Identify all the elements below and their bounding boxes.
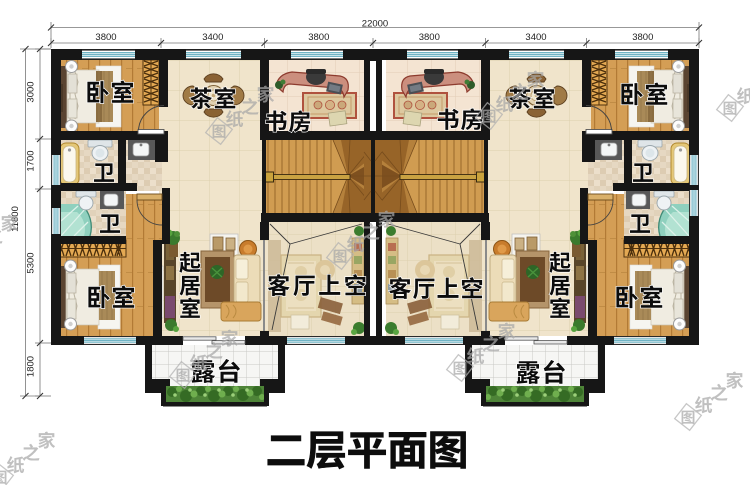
svg-text:3800: 3800 <box>632 32 653 43</box>
svg-text:1700: 1700 <box>26 150 37 171</box>
svg-text:5300: 5300 <box>26 252 37 273</box>
svg-text:22000: 22000 <box>362 19 388 30</box>
svg-text:3400: 3400 <box>202 32 223 43</box>
svg-text:3000: 3000 <box>26 81 37 102</box>
svg-text:3800: 3800 <box>308 32 329 43</box>
svg-text:3800: 3800 <box>419 32 440 43</box>
svg-text:1800: 1800 <box>26 356 37 377</box>
svg-text:3800: 3800 <box>95 32 116 43</box>
svg-text:3400: 3400 <box>525 32 546 43</box>
